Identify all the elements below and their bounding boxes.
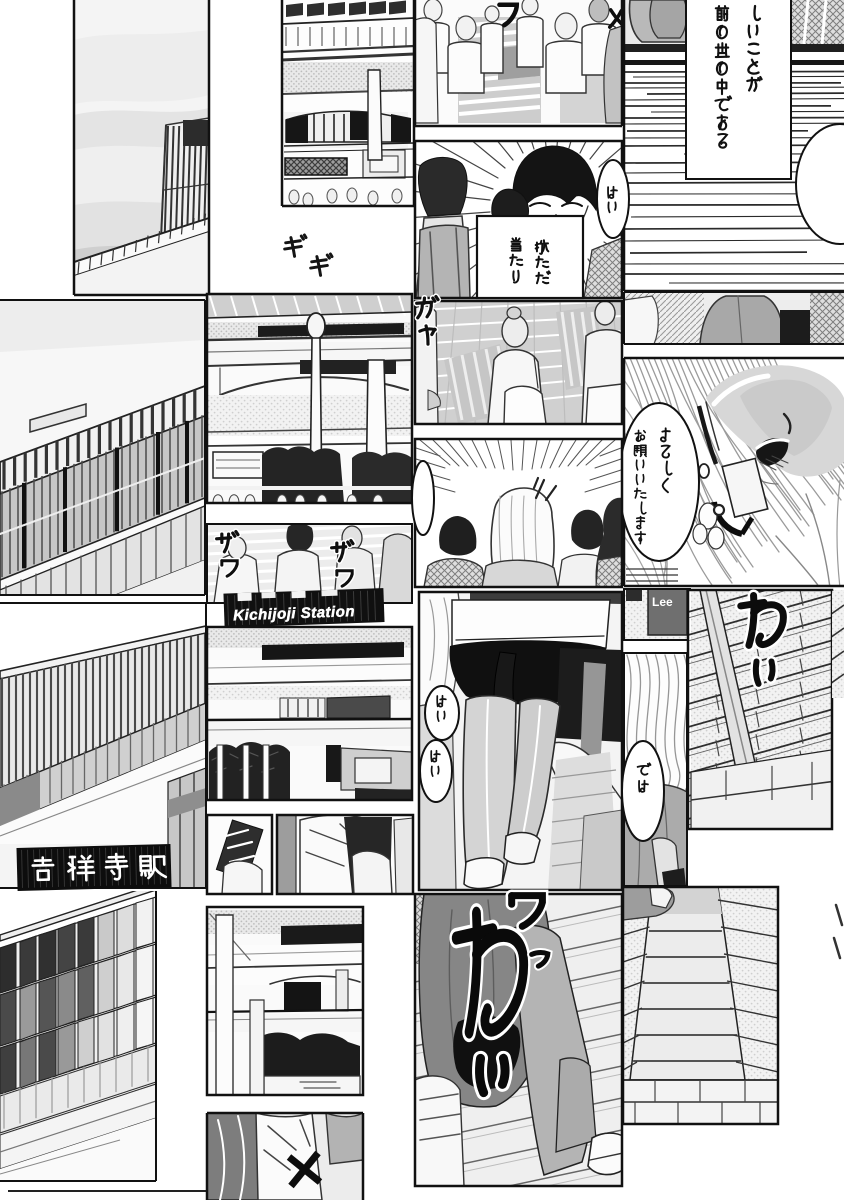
svg-text:Lee: Lee [652, 595, 673, 609]
